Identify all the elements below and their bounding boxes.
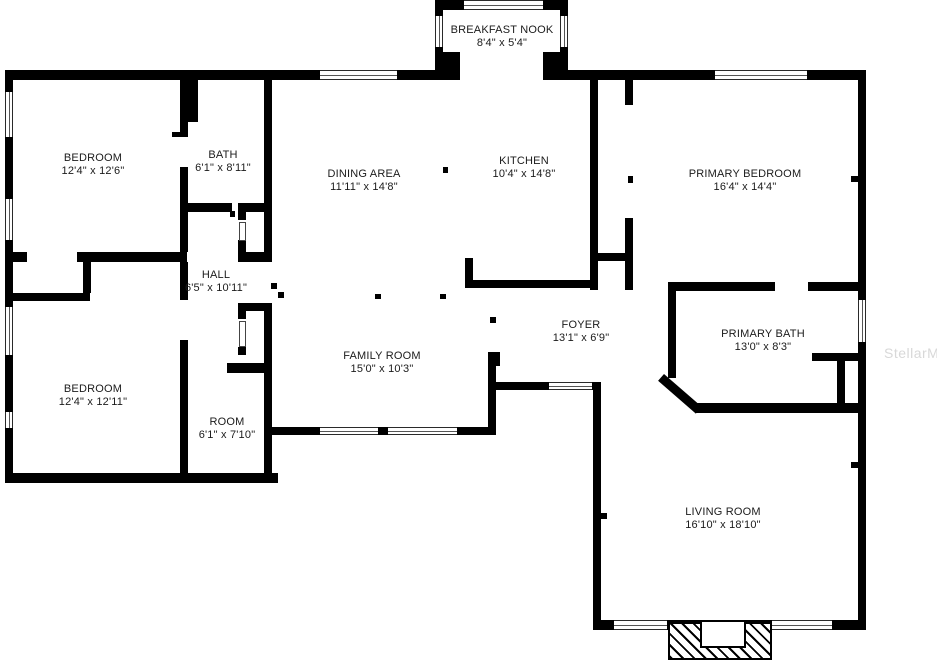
door-tick bbox=[230, 211, 235, 217]
door-tick bbox=[443, 167, 448, 173]
wall-segment bbox=[625, 78, 633, 105]
wall-segment bbox=[238, 347, 246, 355]
room-label-bedroom-1: BEDROOM 12'4" x 12'6" bbox=[62, 152, 125, 178]
room-label-foyer: FOYER 13'1" x 6'9" bbox=[553, 319, 610, 345]
wall-segment bbox=[837, 361, 845, 405]
window bbox=[858, 298, 866, 346]
wall-segment bbox=[5, 355, 13, 410]
room-label-breakfast-nook: BREAKFAST NOOK 8'4" x 5'4" bbox=[451, 24, 554, 50]
room-dims: 6'1" x 8'11" bbox=[195, 162, 251, 175]
room-label-dining-area: DINING AREA 11'11" x 14'8" bbox=[327, 168, 400, 194]
room-dims: 13'1" x 6'9" bbox=[553, 332, 610, 345]
wall-segment bbox=[238, 240, 246, 252]
wall-segment bbox=[488, 382, 547, 390]
room-name: PRIMARY BATH bbox=[721, 328, 805, 341]
wall-segment bbox=[182, 78, 198, 122]
room-label-primary-bedroom: PRIMARY BEDROOM 16'4" x 14'4" bbox=[689, 168, 802, 194]
closet-door bbox=[239, 321, 246, 347]
room-dims: 16'10" x 18'10" bbox=[685, 519, 761, 532]
wall-segment bbox=[188, 203, 232, 212]
wall-segment bbox=[812, 353, 858, 361]
room-name: FOYER bbox=[553, 319, 610, 332]
door-tick bbox=[278, 292, 284, 298]
wall-segment bbox=[5, 252, 27, 262]
room-dims: 15'0" x 10'3" bbox=[343, 363, 421, 376]
wall-segment bbox=[83, 262, 91, 293]
door-tick bbox=[172, 132, 180, 137]
room-label-hall: HALL 6'5" x 10'11" bbox=[185, 269, 247, 295]
wall-segment bbox=[593, 620, 612, 630]
wall-segment bbox=[593, 382, 601, 630]
window bbox=[386, 427, 461, 435]
room-name: BATH bbox=[195, 149, 251, 162]
wall-segment bbox=[238, 303, 272, 311]
door-tick bbox=[446, 57, 451, 63]
room-label-bath: BATH 6'1" x 8'11" bbox=[195, 149, 251, 175]
floor-plan: BREAKFAST NOOK 8'4" x 5'4" BEDROOM 12'4"… bbox=[0, 0, 937, 660]
room-dims: 12'4" x 12'6" bbox=[62, 165, 125, 178]
window bbox=[462, 0, 547, 10]
room-dims: 8'4" x 5'4" bbox=[451, 37, 554, 50]
room-name: BEDROOM bbox=[59, 383, 127, 396]
wall-segment bbox=[668, 291, 676, 378]
room-dims: 12'4" x 12'11" bbox=[59, 396, 127, 409]
room-name: LIVING ROOM bbox=[685, 506, 761, 519]
door-tick bbox=[851, 176, 858, 182]
wall-segment bbox=[5, 293, 90, 301]
room-label-primary-bath: PRIMARY BATH 13'0" x 8'3" bbox=[721, 328, 805, 354]
wall-segment bbox=[77, 252, 187, 262]
wall-segment bbox=[264, 373, 272, 481]
wall-segment bbox=[488, 352, 500, 366]
door-tick bbox=[628, 176, 633, 183]
room-name: PRIMARY BEDROOM bbox=[689, 168, 802, 181]
room-label-room: ROOM 6'1" x 7'10" bbox=[199, 416, 256, 442]
wall-segment bbox=[238, 311, 246, 319]
wall-segment bbox=[625, 218, 633, 290]
room-name: KITCHEN bbox=[493, 155, 556, 168]
wall-segment bbox=[397, 70, 435, 80]
door-tick bbox=[601, 513, 607, 519]
room-label-family-room: FAMILY ROOM 15'0" x 10'3" bbox=[343, 350, 421, 376]
wall-segment bbox=[5, 70, 13, 90]
room-dims: 6'1" x 7'10" bbox=[199, 429, 256, 442]
closet-door bbox=[239, 222, 246, 241]
window bbox=[435, 14, 443, 51]
window bbox=[5, 90, 13, 141]
room-name: DINING AREA bbox=[327, 168, 400, 181]
door-tick bbox=[271, 283, 277, 289]
room-dims: 10'4" x 14'8" bbox=[493, 168, 556, 181]
room-dims: 13'0" x 8'3" bbox=[721, 341, 805, 354]
wall-segment bbox=[598, 253, 625, 261]
window bbox=[318, 70, 401, 80]
wall-segment bbox=[560, 0, 568, 14]
room-name: BREAKFAST NOOK bbox=[451, 24, 554, 37]
watermark: StellarMLS bbox=[884, 345, 937, 361]
room-label-living-room: LIVING ROOM 16'10" x 18'10" bbox=[685, 506, 761, 532]
entry-door bbox=[547, 382, 594, 390]
window bbox=[713, 70, 811, 80]
room-name: FAMILY ROOM bbox=[343, 350, 421, 363]
room-name: ROOM bbox=[199, 416, 256, 429]
door-tick bbox=[440, 294, 446, 299]
room-dims: 11'11" x 14'8" bbox=[327, 181, 400, 194]
fireplace-insert bbox=[700, 620, 746, 648]
wall-segment bbox=[378, 427, 386, 435]
wall-segment bbox=[435, 0, 443, 14]
wall-segment bbox=[264, 70, 272, 212]
room-name: BEDROOM bbox=[62, 152, 125, 165]
window bbox=[5, 197, 13, 244]
wall-segment bbox=[264, 311, 272, 363]
door-tick bbox=[490, 317, 496, 323]
window bbox=[5, 305, 13, 359]
room-label-kitchen: KITCHEN 10'4" x 14'8" bbox=[493, 155, 556, 181]
wall-segment bbox=[238, 203, 272, 212]
wall-segment bbox=[808, 282, 866, 291]
window bbox=[318, 427, 382, 435]
wall-segment bbox=[668, 282, 775, 291]
wall-segment bbox=[5, 473, 278, 483]
wall-segment bbox=[238, 212, 246, 220]
wall-segment bbox=[238, 252, 272, 262]
wall-segment bbox=[457, 427, 496, 435]
room-dims: 16'4" x 14'4" bbox=[689, 181, 802, 194]
wall-segment bbox=[590, 70, 598, 290]
room-name: HALL bbox=[185, 269, 247, 282]
room-dims: 6'5" x 10'11" bbox=[185, 282, 247, 295]
door-tick bbox=[375, 294, 381, 299]
door-tick bbox=[851, 462, 858, 468]
room-label-bedroom-2: BEDROOM 12'4" x 12'11" bbox=[59, 383, 127, 409]
wall-segment bbox=[180, 340, 188, 481]
wall-segment bbox=[227, 363, 272, 373]
wall-segment bbox=[858, 70, 866, 298]
wall-segment bbox=[5, 137, 13, 197]
wall-segment bbox=[180, 167, 188, 252]
door-tick bbox=[552, 57, 557, 63]
wall-segment bbox=[465, 280, 598, 288]
window bbox=[612, 620, 671, 630]
wall-segment bbox=[271, 427, 318, 435]
wall-segment bbox=[832, 620, 866, 630]
window bbox=[770, 620, 836, 630]
wall-segment bbox=[858, 342, 866, 628]
window bbox=[560, 14, 568, 51]
